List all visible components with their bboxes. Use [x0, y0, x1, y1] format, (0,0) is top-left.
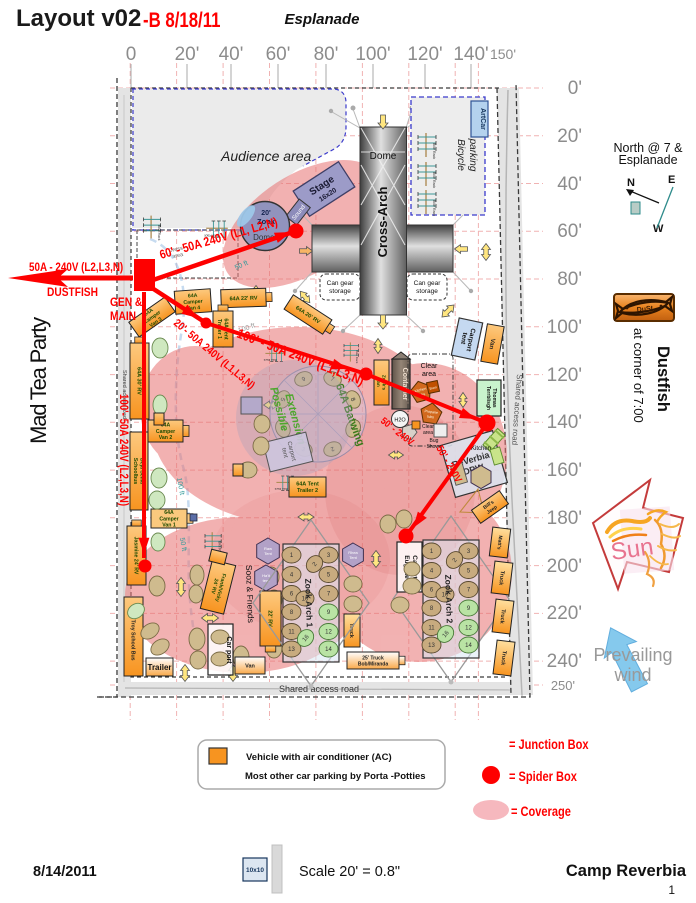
svg-text:Bike Rack: Bike Rack [157, 225, 161, 241]
svg-text:Mad Tea Party: Mad Tea Party [26, 317, 51, 444]
svg-text:E: E [668, 174, 675, 186]
svg-text:DUSTFISH: DUSTFISH [47, 286, 98, 299]
svg-text:= Coverage: = Coverage [511, 804, 571, 819]
svg-text:N: N [627, 177, 635, 189]
svg-text:0': 0' [568, 78, 582, 99]
svg-text:Bike Rack: Bike Rack [432, 200, 436, 216]
svg-text:Van 2: Van 2 [159, 435, 173, 441]
svg-text:Esplanade: Esplanade [284, 11, 359, 28]
svg-text:Van 1: Van 1 [162, 523, 176, 529]
svg-text:parking: parking [467, 138, 478, 172]
svg-text:-B 8/18/11: -B 8/18/11 [143, 9, 221, 32]
svg-text:120': 120' [547, 365, 582, 386]
svg-text:140': 140' [453, 44, 488, 65]
svg-text:Prevailing: Prevailing [593, 645, 672, 665]
svg-text:160': 160' [547, 460, 582, 481]
svg-text:Clear: Clear [421, 363, 438, 370]
svg-text:Bike Rack: Bike Rack [432, 172, 436, 188]
svg-text:Vehicle with air conditioner (: Vehicle with air conditioner (AC) [246, 752, 392, 763]
svg-text:40': 40' [557, 174, 582, 195]
svg-text:120': 120' [407, 44, 442, 65]
svg-text:1: 1 [668, 883, 675, 897]
svg-text:60': 60' [557, 221, 582, 242]
svg-text:area: area [422, 371, 436, 378]
svg-text:Tent: Tent [264, 551, 272, 556]
svg-text:Trailer 2: Trailer 2 [297, 488, 318, 494]
svg-text:10x10: 10x10 [246, 867, 264, 874]
svg-text:Layout v02: Layout v02 [16, 5, 141, 32]
svg-text:Esplanade: Esplanade [618, 153, 677, 167]
svg-text:Scale 20' = 0.8": Scale 20' = 0.8" [299, 864, 400, 880]
svg-text:ArtCar: ArtCar [479, 108, 486, 130]
svg-text:64A 22' RV: 64A 22' RV [229, 295, 257, 302]
svg-text:Van: Van [245, 663, 255, 669]
svg-text:64A: 64A [164, 510, 174, 516]
svg-text:Thomas: Thomas [491, 388, 497, 407]
svg-text:Bike Rack: Bike Rack [355, 350, 359, 364]
svg-text:Zook Arch 2: Zook Arch 2 [443, 574, 455, 623]
svg-text:0: 0 [126, 44, 137, 65]
svg-text:Bicycle: Bicycle [455, 139, 466, 171]
svg-text:Kitchen: Kitchen [471, 446, 491, 452]
svg-text:100'- 50A 240V (L2,L3,N): 100'- 50A 240V (L2,L3,N) [117, 394, 130, 506]
svg-text:at corner of 7:00: at corner of 7:00 [631, 328, 646, 423]
svg-text:Camp Reverbia: Camp Reverbia [566, 862, 687, 880]
svg-text:64A 30' RV: 64A 30' RV [136, 367, 142, 395]
svg-text:12: 12 [465, 626, 472, 632]
svg-text:220': 220' [547, 603, 582, 624]
svg-text:11: 11 [288, 630, 295, 636]
svg-text:storage: storage [416, 288, 438, 295]
svg-text:50A - 240V (L2,L3,N): 50A - 240V (L2,L3,N) [29, 261, 124, 274]
svg-text:80': 80' [314, 44, 339, 65]
svg-text:14: 14 [465, 643, 472, 649]
svg-text:140': 140' [547, 412, 582, 433]
svg-text:Zook Arch 1: Zook Arch 1 [303, 578, 315, 627]
svg-text:20': 20' [175, 44, 200, 65]
svg-text:area: area [423, 430, 433, 436]
svg-text:storage: storage [329, 288, 351, 295]
svg-text:GEN &: GEN & [110, 296, 142, 309]
svg-text:Camper: Camper [156, 429, 175, 435]
svg-text:8/14/2011: 8/14/2011 [33, 864, 97, 880]
svg-text:Container: Container [401, 368, 408, 401]
svg-text:Camper: Camper [159, 516, 178, 522]
svg-text:13: 13 [288, 647, 295, 653]
svg-text:180': 180' [547, 508, 582, 529]
svg-text:M. Troy School Bus: M. Troy School Bus [130, 612, 136, 660]
svg-text:Bob/Miranda: Bob/Miranda [358, 661, 388, 667]
svg-text:150': 150' [490, 46, 516, 62]
svg-text:60': 60' [266, 44, 291, 65]
svg-text:Dome: Dome [370, 151, 397, 162]
svg-text:100': 100' [355, 44, 390, 65]
svg-text:Bike Rack: Bike Rack [432, 143, 436, 159]
svg-text:= Junction Box: = Junction Box [509, 737, 589, 752]
svg-text:240': 240' [547, 651, 582, 672]
svg-text:80': 80' [557, 269, 582, 290]
svg-text:Car port: Car port [225, 636, 232, 664]
svg-text:Jasmine 24' RV: Jasmine 24' RV [133, 537, 139, 575]
svg-text:Bike Rack: Bike Rack [274, 487, 288, 491]
svg-text:Shared access road: Shared access road [279, 684, 359, 694]
svg-text:11: 11 [428, 626, 435, 632]
svg-text:40': 40' [219, 44, 244, 65]
svg-text:Audience area: Audience area [220, 148, 312, 164]
svg-text:250': 250' [551, 678, 575, 693]
svg-text:Dustfish: Dustfish [654, 346, 672, 412]
svg-text:200': 200' [547, 556, 582, 577]
svg-text:14: 14 [325, 647, 332, 653]
svg-text:Can gear: Can gear [327, 280, 355, 287]
svg-text:13: 13 [428, 643, 435, 649]
svg-text:Sooz & Friends: Sooz & Friends [244, 565, 256, 623]
svg-text:12: 12 [325, 630, 332, 636]
svg-text:wind: wind [613, 665, 651, 685]
svg-text:Bike Rack: Bike Rack [263, 358, 277, 362]
svg-text:Can gear: Can gear [414, 280, 442, 287]
svg-text:Most other car parking by Port: Most other car parking by Porta -Potties [245, 771, 426, 782]
svg-text:100': 100' [547, 317, 582, 338]
svg-text:64A Tent: 64A Tent [296, 482, 319, 488]
svg-text:= Spider Box: = Spider Box [509, 769, 577, 784]
svg-text:Schoolbus: Schoolbus [132, 458, 138, 485]
svg-text:Trailer: Trailer [147, 663, 171, 672]
svg-text:MAIN: MAIN [110, 310, 136, 323]
svg-text:Tent: Tent [349, 555, 357, 560]
svg-text:Cross-Arch: Cross-Arch [375, 187, 390, 258]
svg-text:Terrblisgh: Terrblisgh [485, 386, 491, 410]
svg-text:20': 20' [557, 126, 582, 147]
